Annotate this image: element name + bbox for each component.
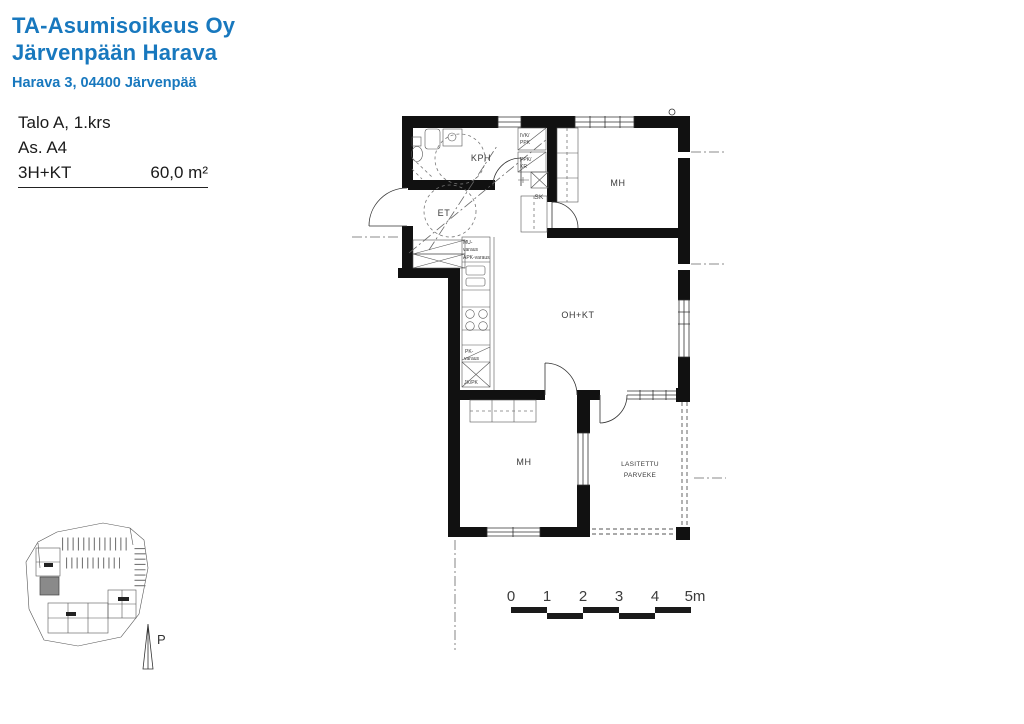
- room-label-balcony-1: LASITETTU: [621, 461, 659, 468]
- room-label-mh-bottom: MH: [516, 457, 531, 467]
- room-label-kph: KPH: [471, 153, 491, 163]
- room-label-oh-kt: OH+KT: [561, 310, 594, 320]
- header: TA-Asumisoikeus Oy Järvenpään Harava Har…: [12, 12, 235, 91]
- scale-tick-0: 0: [507, 588, 515, 605]
- label-ppk-kr-1: PPK/: [520, 157, 532, 163]
- window-bedroom-top: [575, 116, 634, 128]
- scale-tick-1: 1: [543, 588, 551, 605]
- label-mu-1: MU-: [463, 240, 473, 246]
- north-label: P: [157, 632, 166, 647]
- scale-bar: 0 1 2 3 4 5m: [507, 588, 706, 619]
- site-plan: [26, 523, 148, 646]
- windows: [487, 116, 690, 537]
- window-bedroom-bottom: [487, 527, 540, 537]
- site-highlighted-building: [40, 577, 59, 595]
- window-kph: [498, 116, 521, 128]
- label-ivk-ppk-1: IVK/: [520, 133, 530, 139]
- window-balcony-top: [627, 390, 676, 400]
- window-bedroom-balcony: [577, 433, 590, 485]
- north-arrow: P: [143, 624, 166, 669]
- scale-tick-5: 5m: [685, 588, 706, 605]
- room-label-balcony-2: PARVEKE: [624, 472, 657, 479]
- building-floor: Talo A, 1.krs: [18, 110, 208, 135]
- floor-plan: KPH ET MH OH+KT MH LASITETTU PARVEKE SK …: [352, 109, 726, 650]
- layout-area-row: 3H+KT 60,0 m²: [18, 160, 208, 188]
- parking-rows: [62, 544, 140, 590]
- address: Harava 3, 04400 Järvenpää: [12, 75, 235, 91]
- scale-tick-4: 4: [651, 588, 659, 605]
- scale-bar-segments: [511, 607, 691, 619]
- label-mu-2: varaus: [463, 247, 479, 253]
- wardrobe-bedroom-bottom: [470, 400, 536, 422]
- label-sk: SK: [534, 194, 544, 201]
- wardrobe-bedroom-top: [557, 128, 578, 202]
- scale-tick-2: 2: [579, 588, 587, 605]
- bedroom-bottom-door: [545, 363, 577, 395]
- layout-type: 3H+KT: [18, 160, 71, 185]
- room-label-mh-top: MH: [610, 178, 625, 188]
- window-living-right: [678, 300, 690, 357]
- balcony-door: [600, 395, 627, 423]
- page: TA-Asumisoikeus Oy Järvenpään Harava Har…: [0, 0, 1024, 724]
- label-ivk-ppk-2: PPK: [520, 140, 531, 146]
- reference-lines: [352, 109, 726, 650]
- doors: [369, 158, 627, 423]
- entrance-door: [369, 188, 407, 226]
- area-value: 60,0 m²: [150, 160, 208, 185]
- site-buildings: [36, 548, 136, 633]
- label-pk-2: varaus: [464, 356, 480, 362]
- room-label-et: ET: [438, 208, 451, 218]
- company-name-line2: Järvenpään Harava: [12, 39, 235, 66]
- bedroom-top-door: [552, 202, 578, 228]
- label-ppk-kr-2: KR: [520, 164, 527, 170]
- scale-tick-3: 3: [615, 588, 623, 605]
- floor-plan-drawing: KPH ET MH OH+KT MH LASITETTU PARVEKE SK …: [0, 0, 1024, 724]
- apartment-info: Talo A, 1.krs As. A4 3H+KT 60,0 m²: [18, 110, 208, 188]
- label-pk-1: PK-: [465, 349, 474, 355]
- label-jk-pk: JK/PK: [464, 380, 479, 386]
- company-name-line1: TA-Asumisoikeus Oy: [12, 12, 235, 39]
- label-apk-varaus: APK-varaus: [463, 255, 490, 261]
- unit-number: As. A4: [18, 135, 208, 160]
